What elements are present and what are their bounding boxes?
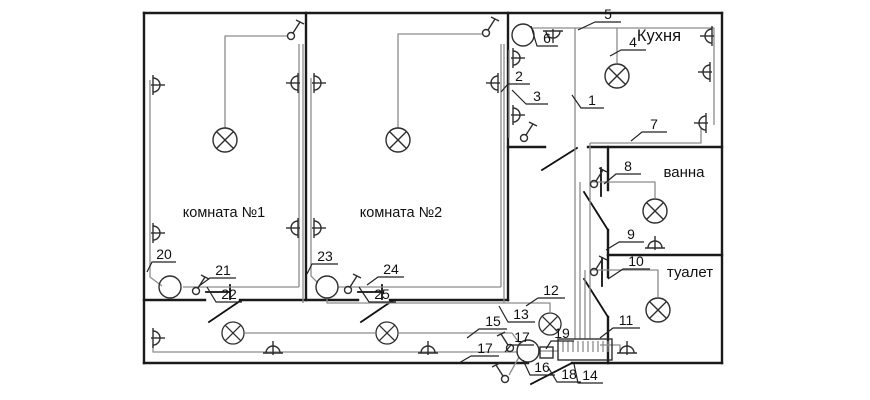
socket-icon [645, 236, 665, 250]
toilet-label: туалет [667, 264, 713, 281]
svg-text:25: 25 [374, 286, 390, 302]
svg-text:15: 15 [485, 313, 501, 329]
lamp-kitchen-icon [605, 64, 629, 88]
socket-icon [698, 62, 712, 82]
svg-text:17: 17 [477, 340, 493, 356]
svg-text:19: 19 [554, 325, 570, 341]
callout-2: 2 [501, 68, 530, 92]
svg-text:14: 14 [582, 367, 598, 383]
switch-toilet-icon [591, 256, 608, 276]
callout-18: 18 [548, 366, 581, 382]
junction-box-kitchen [512, 24, 534, 46]
svg-text:5: 5 [604, 6, 612, 22]
callout-5: 5 [578, 6, 621, 30]
callout-10: 10 [608, 253, 650, 279]
svg-text:21: 21 [215, 262, 231, 278]
svg-text:3: 3 [533, 88, 541, 104]
socket-icon [286, 73, 300, 93]
room-labels: комната №1 комната №2 Кухня ванна туалет [183, 27, 713, 281]
callout-11: 11 [600, 312, 640, 338]
switch-hall-1-icon [497, 332, 514, 352]
callout-14: 14 [574, 364, 603, 383]
lamp-toilet-icon [646, 298, 670, 322]
doors [206, 148, 608, 384]
socket-icon [286, 218, 300, 238]
svg-text:17: 17 [514, 329, 530, 345]
callout-20: 20 [147, 246, 176, 272]
room2-label: комната №2 [360, 205, 442, 221]
lamp-corridor-1-icon [222, 322, 244, 344]
socket-icon [151, 75, 165, 95]
callout-13: 13 [499, 306, 535, 322]
wire-kitchen-top [532, 28, 714, 125]
socket-icon [486, 73, 500, 93]
svg-text:9: 9 [627, 226, 635, 242]
kitchen-label: Кухня [637, 27, 681, 45]
svg-text:23: 23 [317, 248, 333, 264]
callout-7: 7 [631, 116, 667, 141]
switch-kitchen-icon [521, 122, 538, 142]
callout-9: 9 [606, 226, 644, 250]
socket-icon [151, 223, 165, 243]
floor-plan: 1 2 3 4 5 6 7 8 9 10 11 12 13 14 15 16 1… [0, 0, 870, 400]
switch-box2-icon [345, 274, 362, 294]
svg-text:24: 24 [383, 261, 399, 277]
callout-3: 3 [512, 88, 548, 104]
lamp-bath-icon [643, 199, 667, 223]
wire-room1-lamp [225, 36, 288, 128]
socket-icon [151, 328, 165, 348]
room1-label: комната №1 [183, 205, 265, 221]
socket-icon [700, 26, 714, 46]
junction-box-room1 [159, 276, 181, 298]
switch-hall-2-icon [492, 363, 509, 383]
svg-text:1: 1 [588, 92, 596, 108]
socket-icon [418, 341, 438, 355]
svg-text:7: 7 [650, 116, 658, 132]
door-toilet [584, 258, 608, 317]
svg-text:20: 20 [156, 246, 172, 262]
lamp-room1-icon [213, 128, 237, 152]
distribution-panel [558, 339, 612, 360]
svg-text:4: 4 [629, 34, 637, 50]
callout-22: 22 [207, 286, 242, 302]
lamp-room2-icon [386, 128, 410, 152]
switch-room1-icon [288, 20, 305, 40]
svg-text:22: 22 [221, 286, 237, 302]
svg-text:2: 2 [515, 68, 523, 84]
door-kitchen [542, 148, 577, 170]
socket-icon [263, 341, 283, 355]
callout-24: 24 [367, 261, 404, 285]
switch-room2-icon [483, 17, 500, 37]
wire-kitchen-sockets-right [590, 128, 701, 143]
panel-hatch [563, 341, 608, 352]
wire-hall-switch [509, 357, 519, 375]
lamp-corridor-2-icon [376, 322, 398, 344]
bath-label: ванна [663, 164, 705, 181]
callout-1: 1 [572, 92, 604, 108]
callout-21: 21 [199, 262, 236, 286]
svg-text:13: 13 [513, 306, 529, 322]
equipment [159, 24, 612, 362]
switches [193, 17, 608, 383]
callout-6: 6 [531, 26, 558, 46]
switch-bath-icon [591, 168, 608, 188]
svg-text:6: 6 [543, 30, 551, 46]
junction-box-room2 [316, 276, 338, 298]
socket-icon [511, 105, 525, 125]
wire-floor-sockets [153, 344, 518, 352]
svg-text:12: 12 [543, 282, 559, 298]
wire-room2-lamp [398, 34, 482, 128]
svg-text:11: 11 [619, 312, 634, 328]
svg-text:18: 18 [561, 366, 577, 382]
socket-icon [511, 48, 525, 68]
svg-text:8: 8 [624, 158, 632, 174]
callout-19: 19 [546, 325, 574, 349]
callout-8: 8 [604, 158, 641, 184]
socket-icon [312, 218, 326, 238]
door-bath [584, 168, 608, 230]
wiring-diagram: 1 2 3 4 5 6 7 8 9 10 11 12 13 14 15 16 1… [0, 0, 870, 400]
svg-text:10: 10 [628, 253, 644, 269]
walls [144, 13, 722, 363]
socket-icon [312, 73, 326, 93]
svg-text:16: 16 [534, 359, 550, 375]
